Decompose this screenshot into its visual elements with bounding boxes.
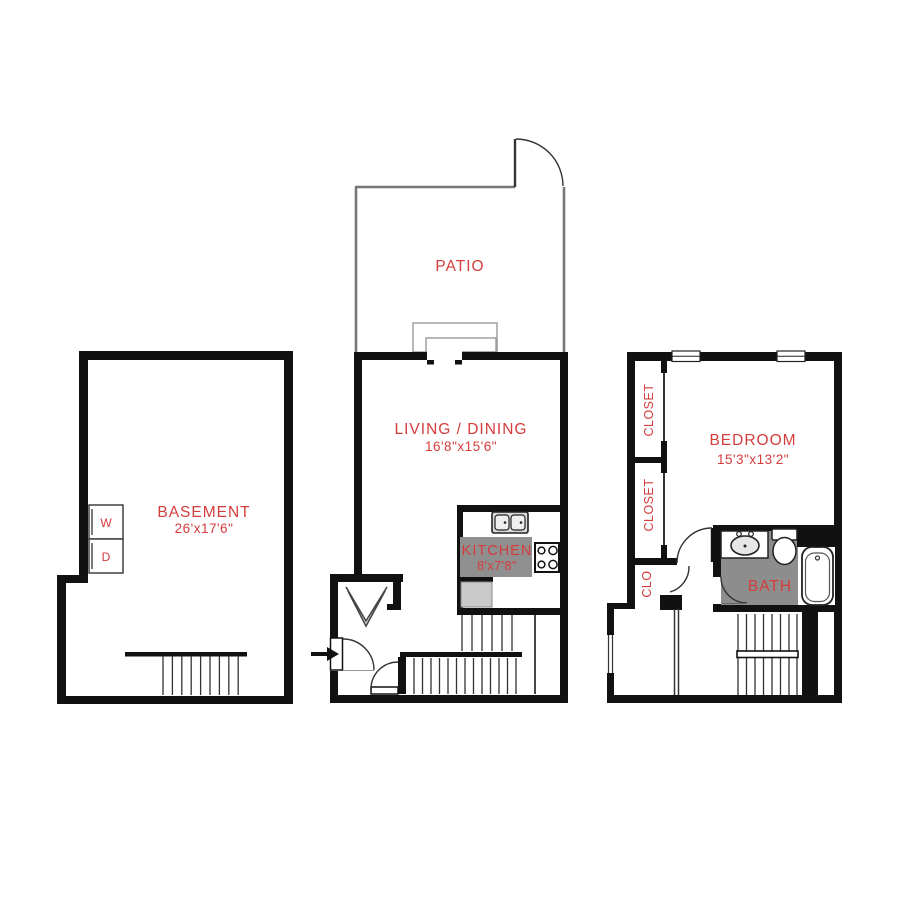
bedroom-window: [672, 351, 700, 362]
bedroom-door-arc: [677, 528, 712, 563]
dryer-label: D: [102, 550, 111, 564]
bathroom: BATH: [713, 525, 835, 696]
bedroom-label: BEDROOM: [709, 432, 796, 449]
entry-closet: [330, 574, 403, 626]
bath-vanity: [721, 531, 768, 558]
patio: PATIO: [355, 139, 564, 352]
basement-unit: W D BASEMENT 26'x17'6": [57, 351, 293, 704]
bath-bottom-wall: [713, 605, 835, 612]
bath-door-opening: [713, 577, 721, 604]
kitchen-top-wall: [457, 505, 560, 512]
stair-door: [371, 662, 398, 694]
stair-side-wall: [802, 612, 818, 696]
floor-plan-drawing: W D BASEMENT 26'x17'6" PATIO: [0, 0, 900, 900]
bifold-door: [346, 587, 387, 621]
patio-label: PATIO: [435, 258, 484, 275]
washer-label: W: [100, 516, 112, 530]
stove: [535, 543, 559, 572]
bedroom-window: [777, 351, 805, 362]
clo-label: CLO: [640, 570, 654, 597]
lower-entry-room: [607, 609, 679, 695]
toilet: [772, 529, 797, 565]
bedroom-dims: 15'3"x13'2": [717, 452, 789, 467]
refrigerator: [461, 582, 492, 607]
closet-lower-label: CLOSET: [642, 478, 656, 531]
hall-wall: [635, 558, 677, 565]
main-floor-unit: PATIO KITCHEN: [311, 139, 568, 703]
closet-upper-label: CLOSET: [642, 383, 656, 436]
bathtub: [798, 542, 835, 605]
living-dims: 16'8"x15'6": [425, 439, 497, 454]
doorway-jamb: [427, 360, 434, 365]
doorway-jamb: [455, 360, 462, 365]
closet-divider-wall: [635, 457, 667, 463]
kitchen-sink: [492, 512, 528, 533]
basement-dims: 26'x17'6": [175, 521, 234, 536]
stair-door-leaf: [371, 687, 398, 694]
kitchen-bottom-wall: [457, 608, 560, 615]
stair-landing-rail: [737, 651, 798, 658]
patio-step-inner: [426, 338, 496, 352]
bath-label: BATH: [748, 578, 792, 595]
tub-faucet: [815, 542, 821, 547]
basement-label: BASEMENT: [157, 504, 250, 521]
kitchen-dims: 8'x7'8": [477, 559, 517, 573]
patio-door-arc: [516, 139, 563, 186]
clo-wall-block: [660, 595, 682, 610]
living-label: LIVING / DINING: [395, 421, 528, 438]
kitchen-label: KITCHEN: [462, 543, 533, 559]
clo-door-arc: [670, 566, 689, 592]
floor-plan: W D BASEMENT 26'x17'6" PATIO: [0, 0, 900, 900]
stair-door-arc: [371, 662, 398, 689]
main-stairs: [398, 615, 535, 694]
patio-doorway-opening: [427, 351, 462, 361]
main-floor-walls: [330, 352, 568, 703]
bedroom-door: [677, 528, 712, 563]
upper-stairs: [737, 614, 798, 695]
upper-floor-unit: BATH CLOSET CLOSET CLO BEDROOM 15'3"x13'…: [607, 351, 842, 703]
entry-door-arc: [343, 639, 374, 670]
counter-edge: [460, 577, 493, 582]
basement-stairs: [125, 652, 247, 695]
